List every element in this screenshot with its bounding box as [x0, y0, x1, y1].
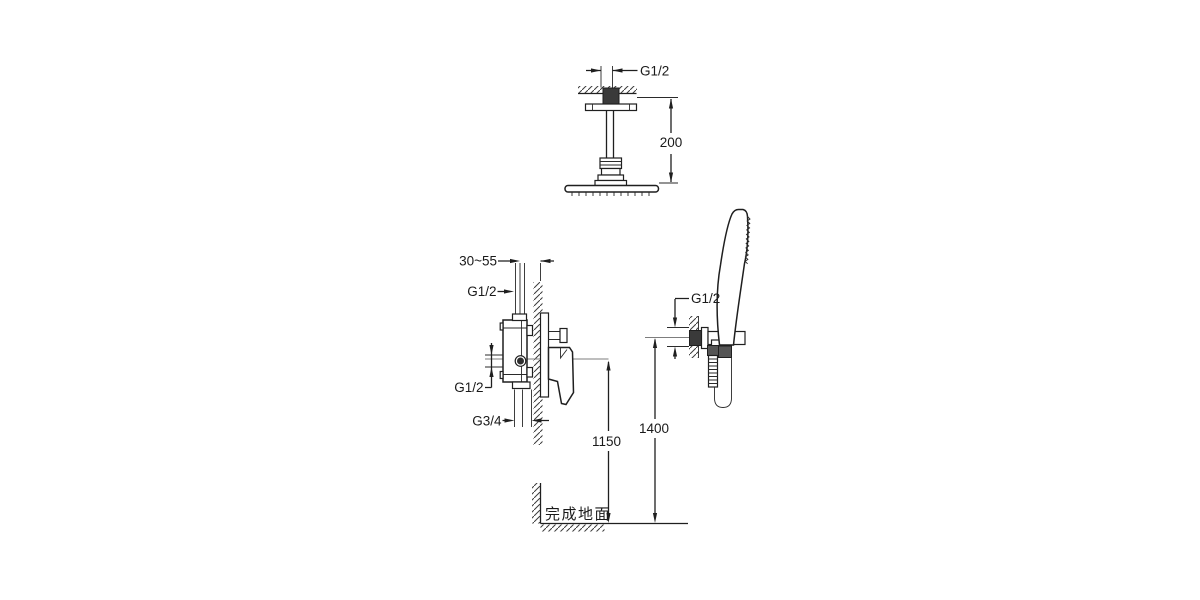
hand-shower-wand — [717, 210, 748, 346]
dim-ceiling-thread: G1/2 — [640, 64, 669, 79]
installation-diagram: G1/2 200 — [0, 0, 1200, 600]
trim-plate — [541, 313, 549, 397]
shower-arm — [607, 111, 614, 159]
dim-top-thread: G1/2 — [467, 284, 496, 299]
handset-hose-nut — [719, 346, 732, 358]
technical-drawing-canvas: G1/2 200 — [0, 0, 1200, 600]
wall-corner-hatch — [532, 483, 541, 524]
mixer-handle — [549, 348, 574, 405]
dim-hand-shower-thread: G1/2 — [691, 291, 720, 306]
floor-hatch — [541, 525, 605, 532]
ceiling-shower-figure: G1/2 200 — [565, 64, 682, 197]
valve-body — [503, 320, 527, 382]
shower-head-nozzles — [572, 193, 649, 197]
hand-shower-figure: G1/2 1400 — [639, 210, 750, 524]
valve-top-port — [513, 314, 527, 321]
wall-outlet — [690, 331, 702, 346]
floor-figure: 完成地面 — [532, 483, 688, 532]
dim-mixer-height: 1150 — [592, 434, 621, 449]
arm-nut — [600, 158, 622, 169]
dim-arm-drop: 200 — [660, 135, 683, 150]
outlet-hose-nut — [708, 346, 719, 356]
ceiling-flange — [586, 104, 637, 111]
threaded-connector — [709, 356, 718, 388]
finished-floor-label: 完成地面 — [545, 505, 611, 523]
valve-bottom-port — [513, 382, 531, 389]
mixer-valve-figure: 30~55 G1/2 G1/2 G3/4 1150 — [454, 254, 621, 524]
dim-embed-depth: 30~55 — [459, 254, 497, 269]
dim-hand-shower-height: 1400 — [639, 421, 669, 436]
shower-head — [565, 186, 659, 193]
dim-outlet-thread: G1/2 — [454, 380, 483, 395]
diverter-knob — [560, 329, 567, 343]
ceiling-fitting — [603, 88, 619, 104]
dim-inlet-thread: G3/4 — [472, 414, 502, 429]
